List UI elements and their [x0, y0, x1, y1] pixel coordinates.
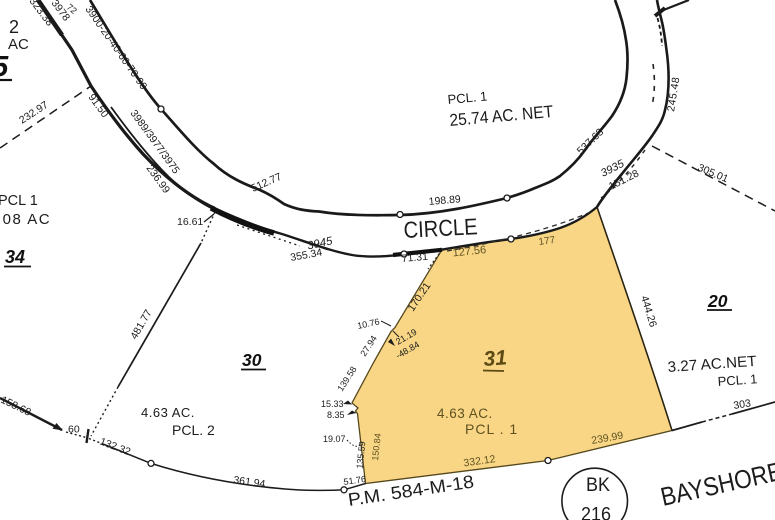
svg-text:PCL. 2: PCL. 2: [172, 422, 215, 438]
svg-text:45: 45: [0, 51, 9, 83]
svg-text:31: 31: [483, 346, 508, 371]
svg-text:8.35: 8.35: [327, 410, 345, 420]
svg-text:19.07: 19.07: [323, 434, 346, 444]
svg-text:4.63 AC.: 4.63 AC.: [141, 405, 195, 420]
svg-text:4.63 AC.: 4.63 AC.: [437, 406, 493, 421]
svg-text:AC: AC: [8, 36, 29, 53]
svg-text:71.31: 71.31: [401, 251, 428, 265]
svg-text:PCL . 1: PCL . 1: [465, 421, 518, 437]
svg-text:34: 34: [5, 247, 25, 267]
svg-text:PCL 1: PCL 1: [0, 193, 38, 209]
svg-text:16.61: 16.61: [177, 216, 203, 228]
svg-text:15.33: 15.33: [321, 399, 344, 409]
svg-text:2: 2: [9, 17, 19, 37]
svg-text:.08 AC: .08 AC: [0, 211, 51, 228]
svg-text:PCL. 1: PCL. 1: [717, 371, 758, 389]
svg-text:30: 30: [242, 350, 262, 370]
svg-text:CIRCLE: CIRCLE: [403, 213, 478, 243]
svg-text:60: 60: [68, 424, 80, 436]
svg-text:BK: BK: [586, 475, 610, 496]
svg-text:20: 20: [707, 291, 728, 311]
svg-text:216: 216: [581, 505, 611, 520]
